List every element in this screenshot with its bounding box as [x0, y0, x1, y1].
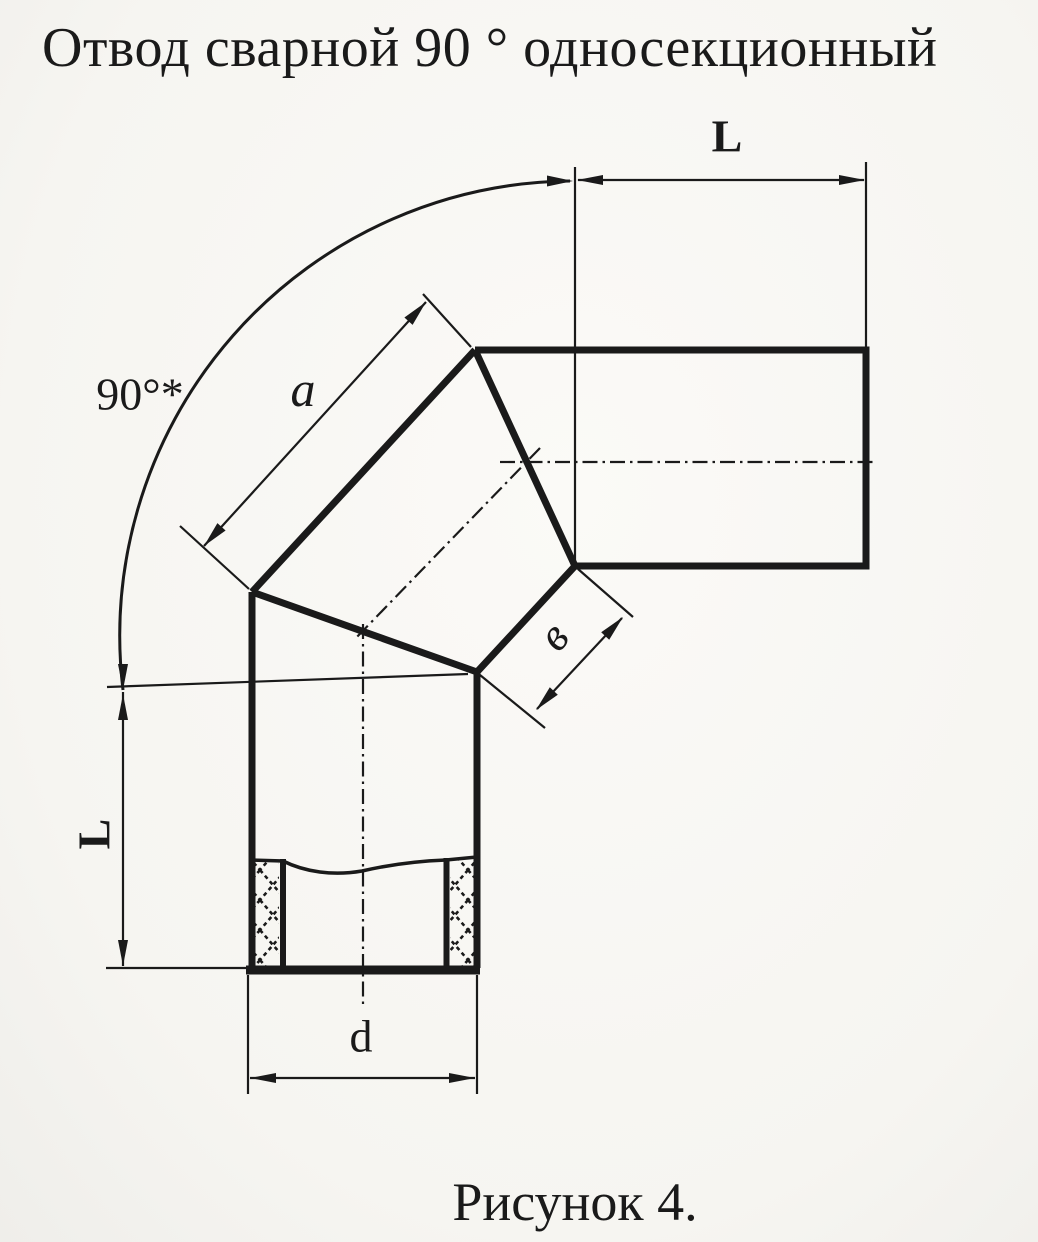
- dim-left-L-arrow-bottom-icon: [118, 940, 128, 966]
- dim-top-L-label: L: [712, 110, 743, 163]
- dim-top-L: [575, 162, 866, 565]
- miter-inner-edge: [477, 566, 575, 672]
- angle-label: 90°*: [96, 368, 183, 421]
- dim-a-line: [204, 302, 426, 546]
- dim-a-label: a: [291, 360, 316, 418]
- figure-caption: Рисунок 4.: [452, 1171, 697, 1233]
- dim-a-ext-upper: [423, 294, 471, 347]
- dim-top-L-arrow-left-icon: [577, 175, 603, 185]
- weld-seam-1: [475, 350, 575, 566]
- miter-outer-edge: [252, 350, 475, 592]
- centerline-miter-section: [354, 448, 540, 640]
- centerlines: [354, 448, 874, 1004]
- pipe-outline: [246, 350, 866, 970]
- dim-left-L-arrow-top-icon: [118, 694, 128, 720]
- dim-d-arrow-left-icon: [250, 1073, 276, 1083]
- dim-d-arrow-right-icon: [449, 1073, 475, 1083]
- dim-left-L-label: L: [68, 819, 121, 850]
- dim-v-ext-lower: [480, 675, 545, 728]
- angle-arc: [118, 176, 573, 691]
- dim-top-L-arrow-right-icon: [839, 175, 865, 185]
- dim-d-label: d: [350, 1010, 373, 1063]
- horizontal-arm-outline: [475, 350, 866, 566]
- scanned-drawing-page: Отвод сварной 90 ° односекционный: [0, 0, 1038, 1242]
- dim-a: [180, 294, 471, 589]
- arc-arrow-top-icon: [547, 176, 573, 187]
- dim-left-L: [106, 674, 468, 968]
- weld-seam-2: [252, 592, 477, 672]
- elbow-diagram: [0, 0, 1038, 1242]
- gasket-hatch-right: [450, 859, 474, 968]
- dim-left-L-ext-top: [107, 674, 468, 687]
- gasket-hatch-left: [253, 861, 279, 968]
- dim-v-ext-upper: [578, 569, 633, 617]
